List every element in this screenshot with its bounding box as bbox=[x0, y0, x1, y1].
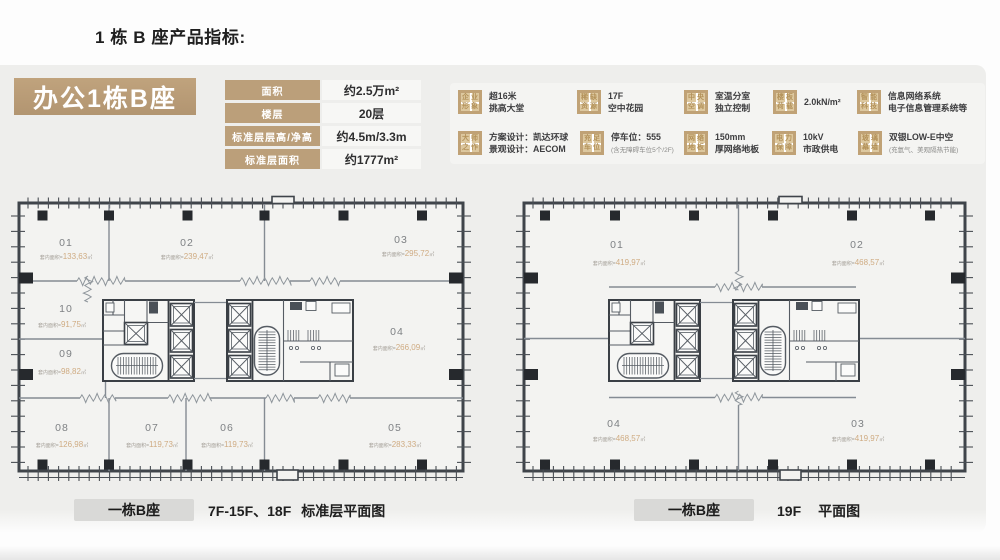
svg-text:03: 03 bbox=[851, 418, 865, 430]
svg-text:04: 04 bbox=[390, 326, 404, 338]
svg-text:02: 02 bbox=[850, 239, 864, 251]
svg-text:04: 04 bbox=[607, 418, 621, 430]
svg-text:10: 10 bbox=[59, 303, 73, 315]
svg-text:09: 09 bbox=[59, 348, 73, 360]
svg-text:03: 03 bbox=[394, 234, 408, 246]
svg-text:08: 08 bbox=[55, 422, 69, 434]
svg-text:02: 02 bbox=[180, 237, 194, 249]
svg-text:01: 01 bbox=[59, 237, 73, 249]
svg-text:05: 05 bbox=[388, 422, 402, 434]
svg-text:01: 01 bbox=[610, 239, 624, 251]
svg-text:07: 07 bbox=[145, 422, 159, 434]
svg-text:06: 06 bbox=[220, 422, 234, 434]
